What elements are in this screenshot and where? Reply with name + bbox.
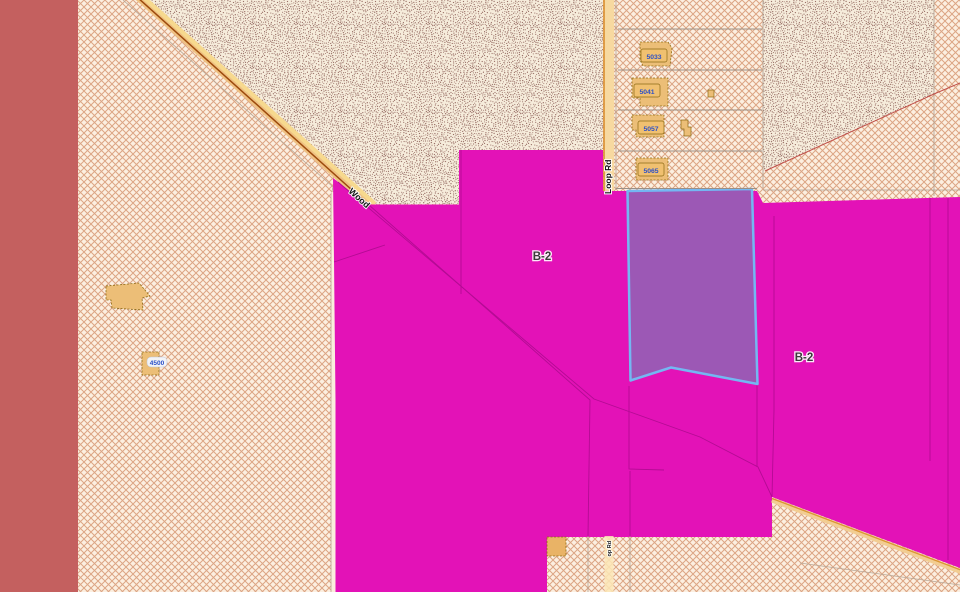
svg-text:op Rd: op Rd [607, 541, 613, 557]
svg-text:B-2: B-2 [533, 251, 552, 263]
svg-text:5057: 5057 [643, 126, 658, 133]
svg-text:5041: 5041 [639, 89, 654, 96]
svg-text:5033: 5033 [646, 54, 661, 61]
svg-text:5065: 5065 [643, 168, 658, 175]
svg-text:4500: 4500 [150, 360, 165, 367]
svg-text:B-2: B-2 [795, 352, 814, 364]
svg-text:Loop Rd: Loop Rd [603, 160, 613, 194]
